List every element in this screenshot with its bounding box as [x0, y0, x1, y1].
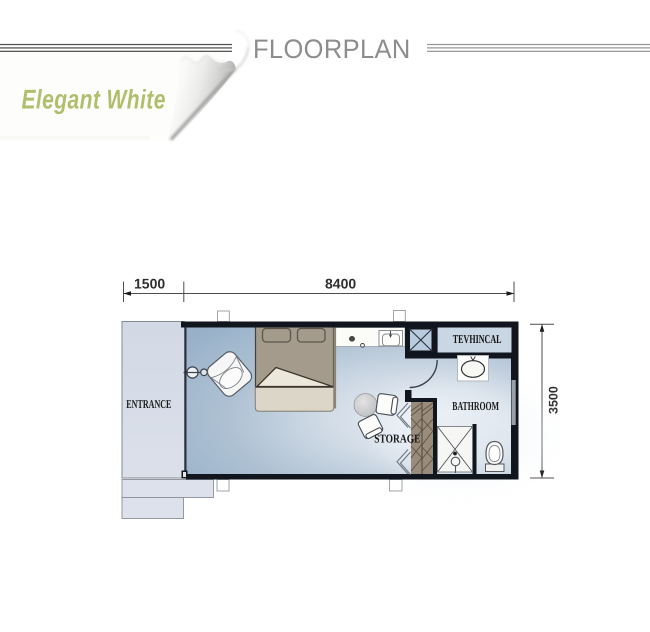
svg-text:8400: 8400	[325, 276, 356, 292]
svg-text:FLOORPLAN: FLOORPLAN	[253, 34, 411, 64]
svg-text:ENTRANCE: ENTRANCE	[126, 397, 171, 411]
svg-text:Elegant White: Elegant White	[22, 85, 166, 115]
svg-text:1500: 1500	[134, 276, 165, 292]
svg-text:STORAGE: STORAGE	[374, 432, 420, 446]
svg-text:3500: 3500	[547, 386, 561, 414]
svg-text:BATHROOM: BATHROOM	[452, 399, 499, 413]
svg-text:TEVHINCAL: TEVHINCAL	[453, 332, 502, 346]
